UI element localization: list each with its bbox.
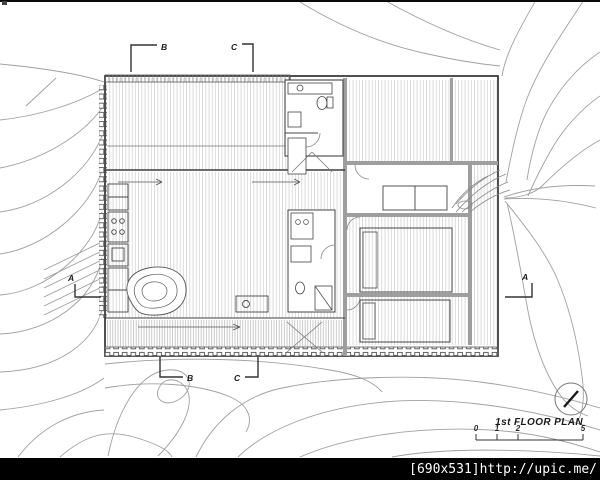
scale-label-1: 1 — [495, 424, 500, 433]
north-arrow-icon — [555, 383, 587, 415]
corner-mark — [2, 1, 7, 5]
scale-label-2: 2 — [515, 424, 521, 433]
section-label-a-left: A — [67, 273, 74, 283]
section-label-c-top: C — [231, 42, 238, 52]
section-marker-b-top: B — [131, 42, 167, 72]
south-deck-edge — [105, 347, 498, 356]
drawing-canvas: B C B C A A — [0, 0, 600, 458]
west-louver-wall — [99, 85, 107, 318]
living-room-rock — [127, 267, 186, 315]
bathroom-core-top — [285, 80, 343, 174]
section-marker-a-right: A — [505, 272, 532, 297]
section-label-c-bottom: C — [234, 373, 241, 383]
scale-label-5: 5 — [581, 424, 586, 433]
section-label-b-top: B — [161, 42, 167, 52]
watermark-bar: [690x531]http://upic.me/ — [0, 458, 600, 480]
corridor-closets — [383, 186, 447, 210]
plan-title: 1st FLOOR PLAN — [495, 417, 583, 428]
top-border-line — [0, 0, 600, 2]
section-label-b-bottom: B — [187, 373, 193, 383]
section-marker-c-top: C — [231, 42, 253, 72]
bathroom-core-mid — [288, 210, 335, 312]
floor-plan-page: B C B C A A — [0, 0, 600, 480]
scale-label-0: 0 — [474, 424, 479, 433]
section-label-a-right: A — [521, 272, 528, 282]
watermark-url-text: [690x531]http://upic.me/ — [409, 462, 600, 477]
floor-plan-drawing: B C B C A A — [0, 0, 600, 458]
